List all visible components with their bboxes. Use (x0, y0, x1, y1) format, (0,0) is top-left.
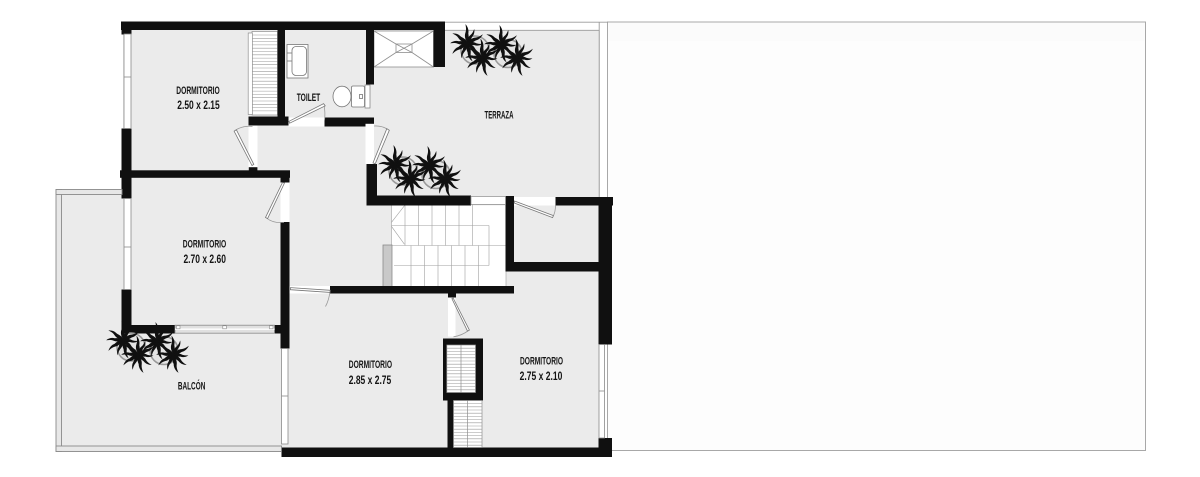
svg-text:DORMITORIO: DORMITORIO (520, 356, 563, 368)
svg-text:2.85 x 2.75: 2.85 x 2.75 (349, 375, 392, 387)
svg-text:BALCÓN: BALCÓN (178, 379, 206, 392)
svg-text:2.70 x 2.60: 2.70 x 2.60 (183, 254, 226, 266)
svg-text:TOILET: TOILET (297, 92, 321, 104)
svg-text:TERRAZA: TERRAZA (485, 110, 514, 122)
svg-text:DORMITORIO: DORMITORIO (176, 85, 220, 97)
svg-text:2.75 x 2.10: 2.75 x 2.10 (520, 371, 563, 383)
svg-text:2.50 x 2.15: 2.50 x 2.15 (177, 100, 220, 112)
svg-text:DORMITORIO: DORMITORIO (349, 359, 393, 371)
svg-text:DORMITORIO: DORMITORIO (183, 239, 227, 251)
